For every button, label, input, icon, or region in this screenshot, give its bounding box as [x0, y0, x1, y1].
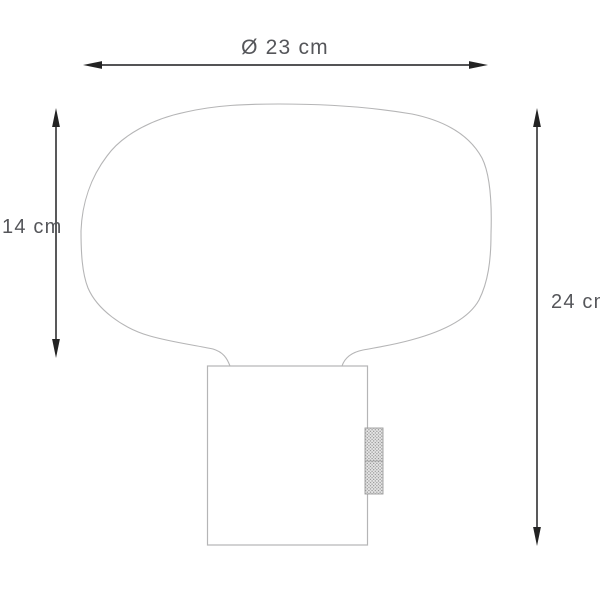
- switch-knob: [365, 428, 383, 494]
- arrowhead-up: [52, 108, 60, 127]
- arrowhead-left: [83, 61, 102, 69]
- lamp-shade-outline: [81, 104, 491, 366]
- total-height-label: 24 cm: [551, 291, 599, 314]
- arrowhead-up: [533, 108, 541, 127]
- diameter-label: Ø 23 cm: [180, 36, 390, 60]
- lamp-dimension-drawing: [0, 0, 600, 600]
- total-height-dimension-arrow: [533, 108, 541, 546]
- lamp-dimension-diagram: Ø 23 cm 14 cm 24 cm: [0, 0, 600, 600]
- arrowhead-right: [469, 61, 488, 69]
- diameter-dimension-arrow: [83, 61, 488, 69]
- arrowhead-down: [52, 339, 60, 358]
- lamp-base-outline: [208, 366, 368, 545]
- arrowhead-down: [533, 527, 541, 546]
- shade-height-label: 14 cm: [2, 216, 54, 239]
